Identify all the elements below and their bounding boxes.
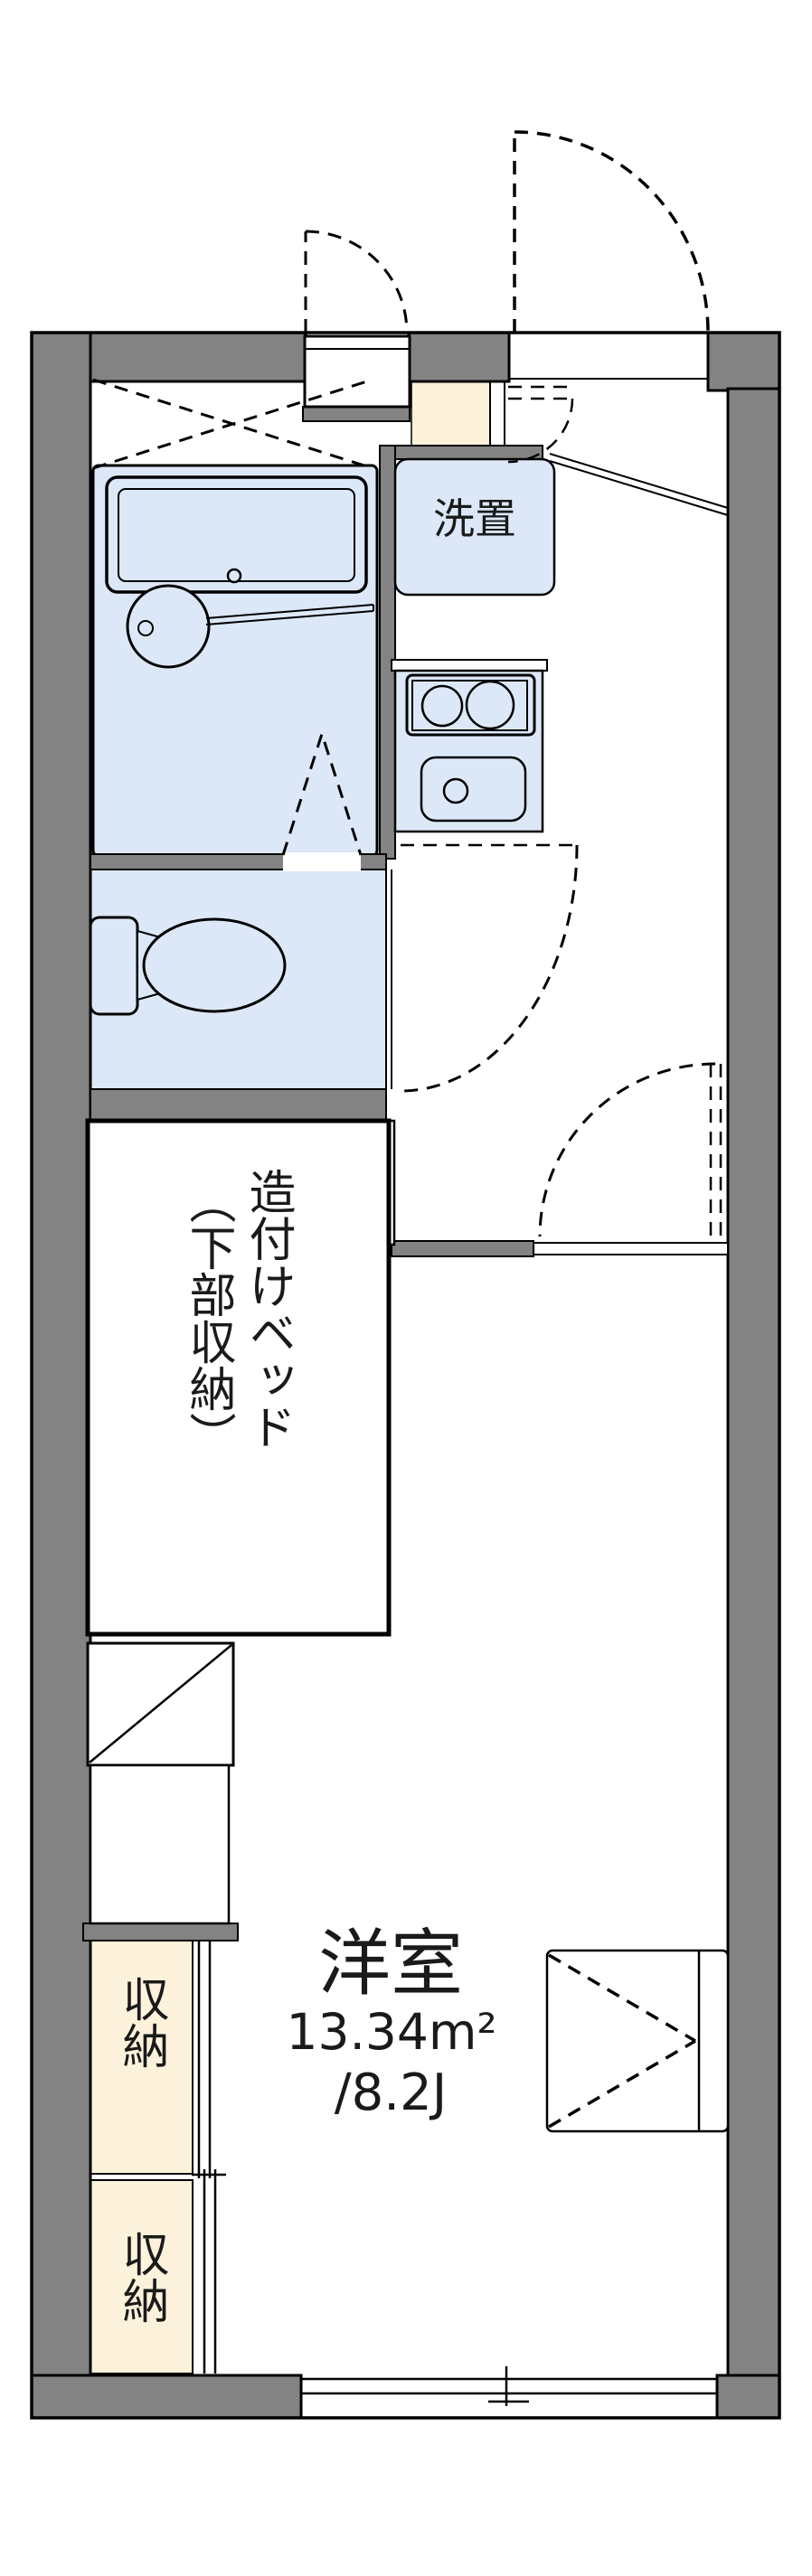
toilet-tank-icon — [90, 917, 137, 1014]
room-door-threshold — [533, 1243, 728, 1255]
wall-top-right-corner — [708, 333, 779, 390]
wall-kitchen-bath — [380, 446, 395, 859]
storage-upper-label: 収納 — [114, 1975, 168, 2069]
bathtub-drain-icon — [228, 569, 241, 582]
floorplan-svg: 洗置 造付けベッド （下部収納） 収納 収納 — [0, 0, 812, 2576]
wall-genkan-partition — [392, 446, 543, 459]
washbasin-drain-icon — [138, 621, 153, 635]
kitchen-counter-lip — [392, 660, 547, 671]
washer-space-label: 洗置 — [433, 494, 516, 543]
wall-right — [728, 389, 779, 2418]
room-area-tatami-label: /8.2J — [335, 2064, 447, 2122]
kitchen — [392, 660, 547, 832]
toilet-bowl-icon — [144, 919, 285, 1011]
wall-toilet-bottom — [90, 1089, 386, 1121]
floorplan-image: 洗置 造付けベッド （下部収納） 収納 収納 — [0, 0, 812, 2576]
entry-door-track — [490, 380, 505, 447]
wall-left — [32, 333, 90, 2418]
built-in-bed-box — [88, 1121, 389, 1634]
entry-genkan-floor — [411, 380, 490, 447]
wall-room-partition — [392, 1241, 533, 1256]
wall-bottom-left — [32, 2375, 301, 2418]
bed-label-main: 造付けベッド — [241, 1168, 295, 1450]
stove-unit — [407, 675, 534, 735]
bath-door-gap — [283, 852, 361, 871]
toilet — [90, 917, 285, 1014]
wall-bottom-right-corner — [717, 2375, 779, 2418]
storage-lower-label: 収納 — [114, 2230, 168, 2324]
room-area-m2-label: 13.34m² — [286, 2003, 496, 2061]
room-name-label: 洋室 — [318, 1922, 463, 2006]
bed-label-sub: （下部収納） — [181, 1177, 235, 1459]
kitchen-sink-icon — [421, 757, 525, 821]
wall-alcove-bottom — [303, 407, 410, 421]
wall-storage-top-stub — [83, 1923, 238, 1941]
window-side-box — [547, 1951, 728, 2131]
counter-space-box — [90, 1765, 229, 1923]
wall-top-middle — [409, 333, 509, 381]
